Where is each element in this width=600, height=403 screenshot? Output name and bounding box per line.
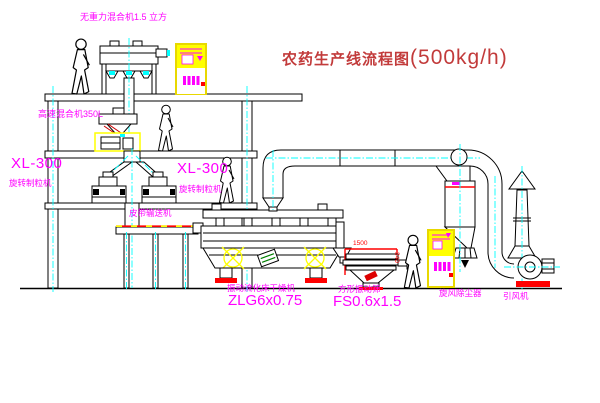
title-capacity: (500kg/h) <box>410 46 508 69</box>
dim-sieve-height: 340 <box>393 252 400 263</box>
person-ground <box>404 235 421 288</box>
belt-conveyor <box>116 226 198 290</box>
label-granulator-mid-model: XL-300 <box>177 161 228 176</box>
label-dryer-model: ZLG6x0.75 <box>228 293 302 308</box>
label-fan: 引风机 <box>503 292 529 301</box>
control-cabinet-top <box>176 44 206 94</box>
label-high-speed-mixer: 高速混合机350L <box>38 110 103 119</box>
diagram-title: 农药生产线流程图(500kg/h) <box>282 46 508 70</box>
granulators <box>92 148 176 288</box>
label-sieve-model: FS0.6x1.5 <box>333 294 401 309</box>
fluid-bed-dryer <box>193 204 351 283</box>
control-cabinet-bottom <box>428 230 454 287</box>
person-floor2 <box>159 105 174 151</box>
cad-flow-diagram: 农药生产线流程图(500kg/h) 无重力混合机1.5 立方 高速混合机350L… <box>0 0 600 403</box>
dim-sieve-length: 1500 <box>353 241 367 248</box>
label-granulator-left-model: XL-300 <box>11 156 62 171</box>
title-text: 农药生产线流程图 <box>282 51 410 68</box>
label-cyclone: 旋风除尘器 <box>439 289 482 298</box>
label-belt-conveyor: 皮带输送机 <box>129 209 172 218</box>
label-granulator-mid-name: 旋转制粒机 <box>179 185 222 194</box>
label-granulator-left-name: 旋转制粒机 <box>9 179 52 188</box>
person-roof <box>72 39 89 94</box>
induced-draft-fan <box>504 255 560 287</box>
label-gravity-free-mixer: 无重力混合机1.5 立方 <box>80 13 167 22</box>
